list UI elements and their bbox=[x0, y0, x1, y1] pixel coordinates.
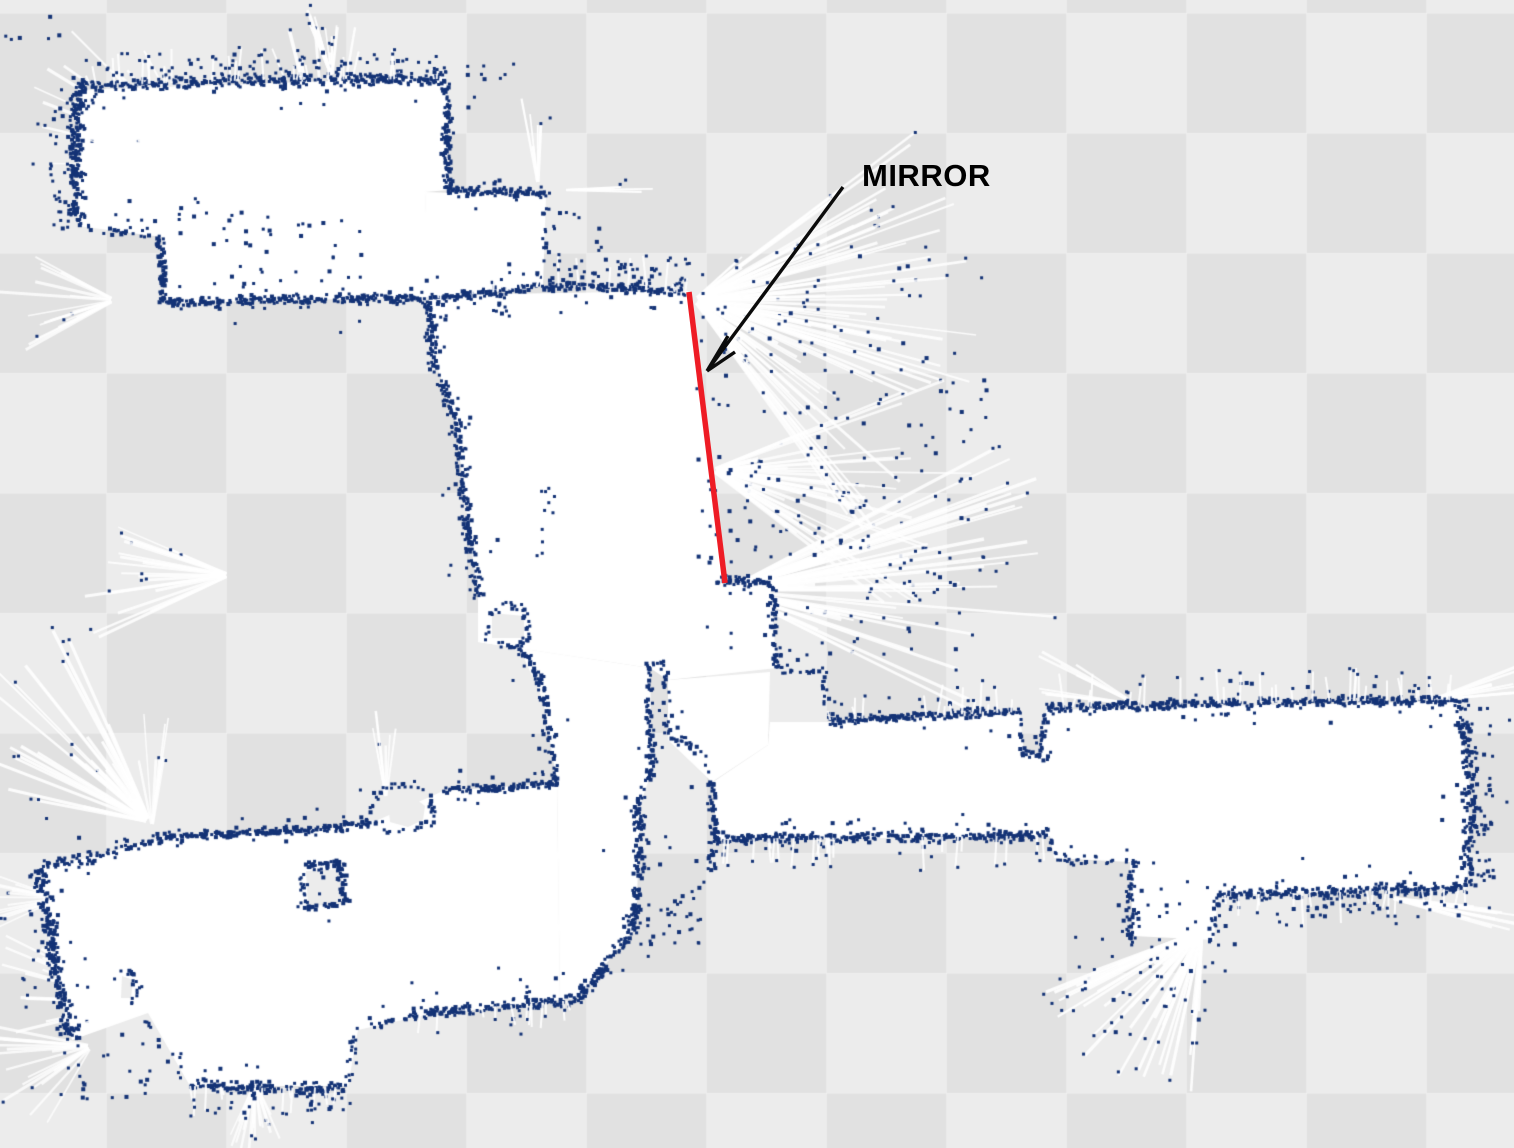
occupancy-grid-map bbox=[0, 0, 1514, 1148]
slam-map-viewport: MIRROR bbox=[0, 0, 1514, 1148]
mirror-label: MIRROR bbox=[862, 160, 991, 191]
